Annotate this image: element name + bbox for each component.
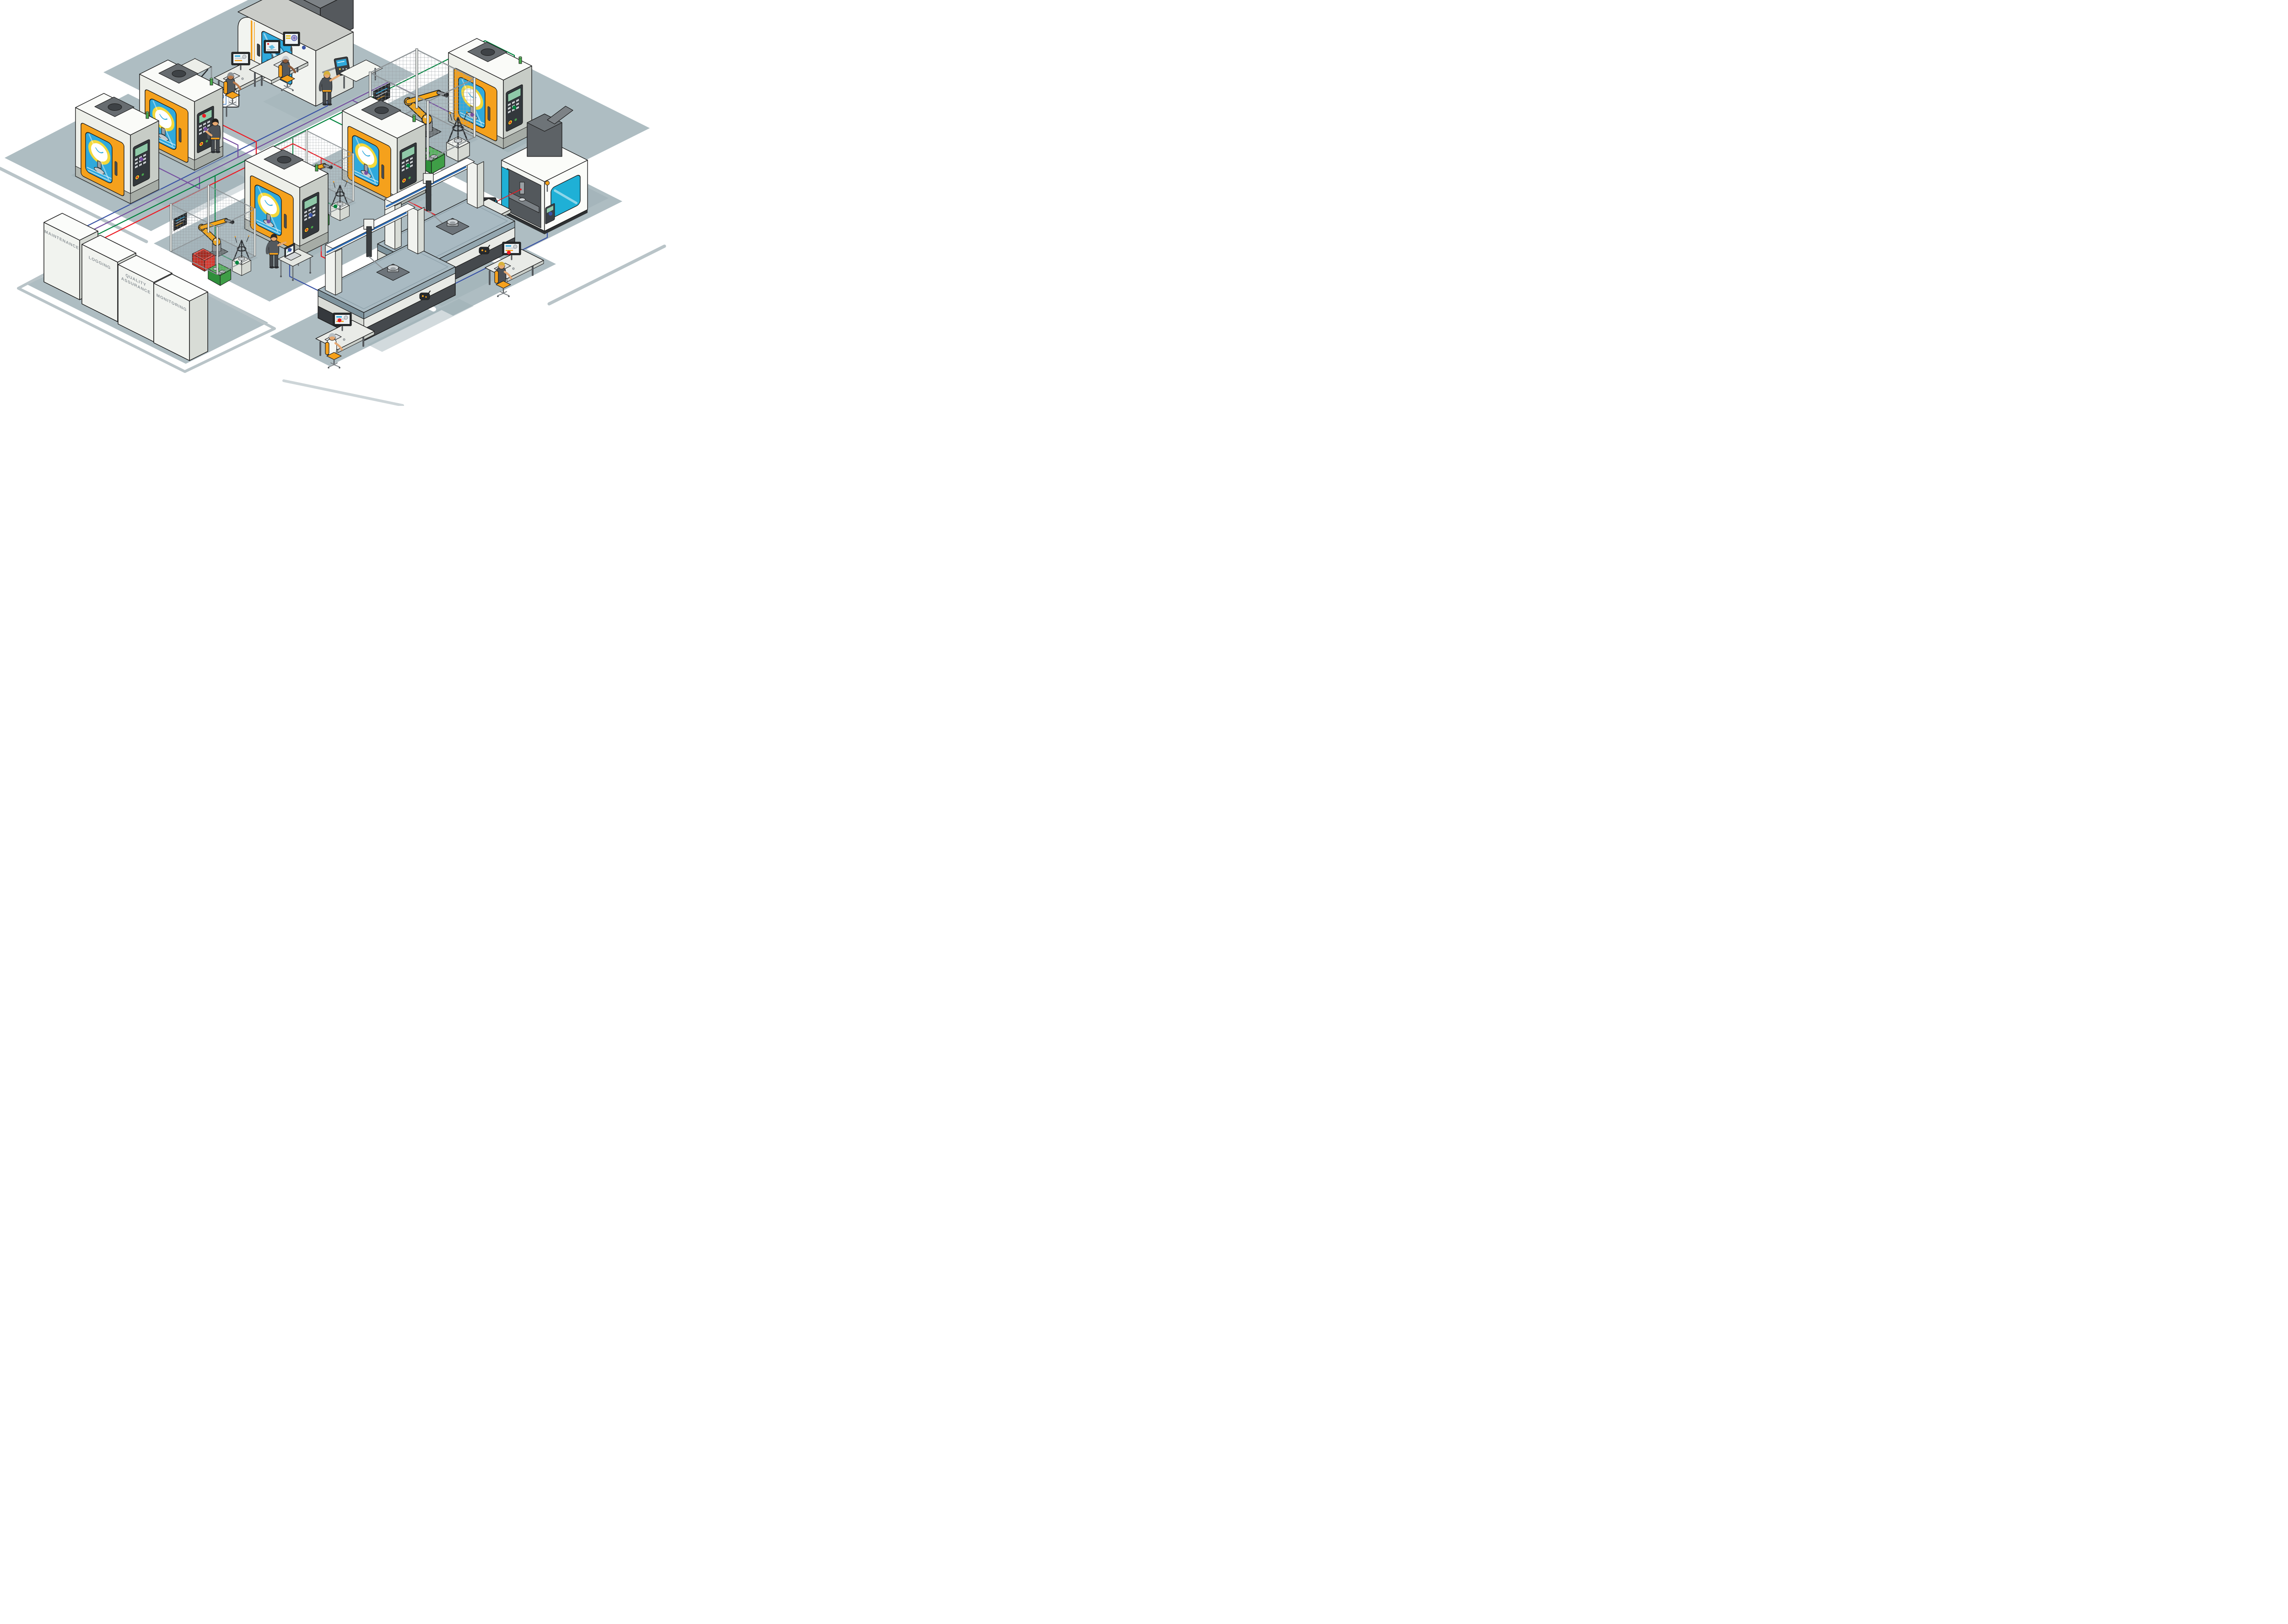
isometric-factory-scene [0,0,691,406]
factory-illustration: MAINTENANCE LOGGING QUALITY ASSURANCE MO… [0,0,691,406]
walkway-edge-band [549,246,664,304]
